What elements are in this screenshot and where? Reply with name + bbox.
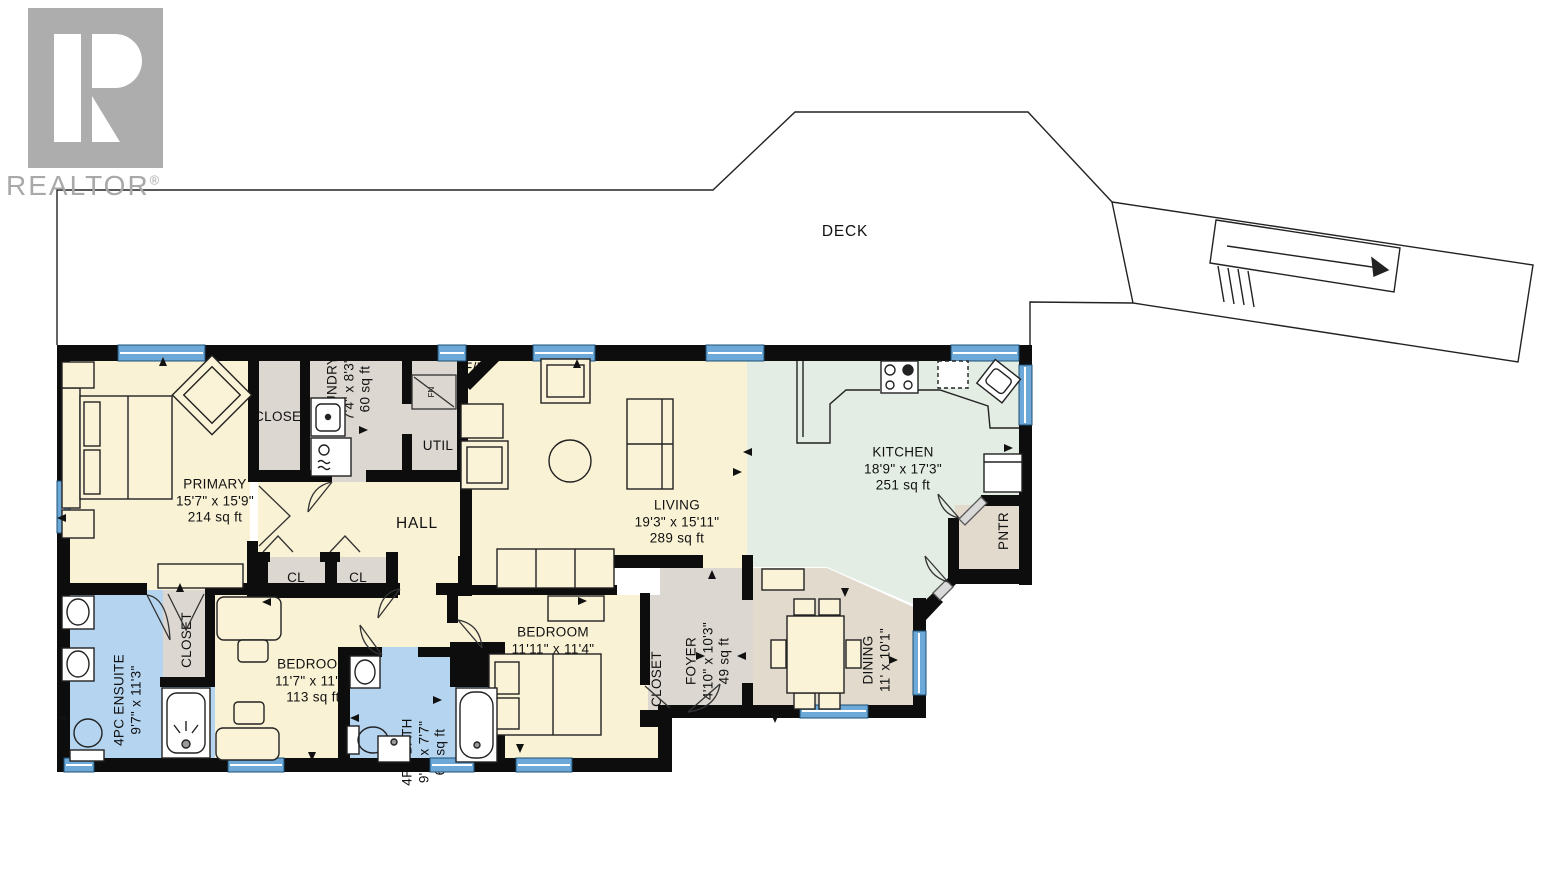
- fridge-icon: [984, 454, 1022, 492]
- dining-table-icon: [771, 599, 861, 709]
- bedroom2-bed-icon: [489, 654, 601, 735]
- sideboard-icon: [762, 569, 804, 590]
- dresser-icon: [548, 596, 604, 621]
- dishwasher-icon: [938, 361, 968, 388]
- living-furniture: [461, 359, 673, 588]
- primary-bed-icon: [62, 388, 172, 508]
- rug-icon: [172, 355, 251, 434]
- deck-outline: [57, 112, 1533, 362]
- realtor-logo-icon: [28, 8, 163, 168]
- structure-layer: [0, 0, 1557, 876]
- floorplan-canvas: REALTOR® DECK PRIMARY15'7" x 15'9"214 sq…: [0, 0, 1557, 876]
- dresser-icon: [158, 564, 243, 588]
- nightstand-icon: [62, 510, 94, 538]
- kitchen-sink-icon: [977, 360, 1021, 403]
- stove-icon: [881, 361, 918, 393]
- realtor-wordmark: REALTOR®: [6, 170, 161, 202]
- bedroom1-desks: [216, 597, 281, 760]
- furniture: [62, 355, 1022, 762]
- washer-icon: [311, 398, 345, 436]
- nightstand-icon: [62, 362, 94, 388]
- dryer-icon: [311, 438, 351, 476]
